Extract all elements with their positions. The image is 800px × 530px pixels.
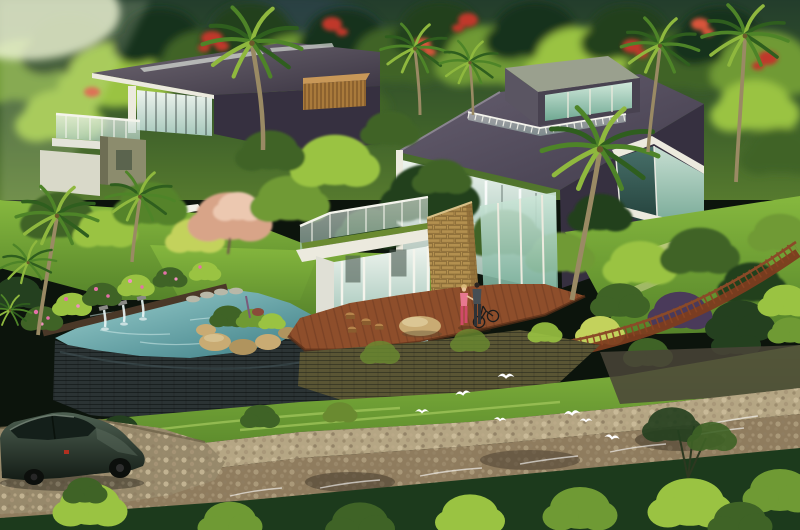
- car-wheel: [24, 469, 44, 485]
- deck-stool: [345, 312, 355, 319]
- deck-stool: [361, 318, 371, 325]
- car-wheel: [109, 458, 131, 478]
- deck-stool: [348, 327, 357, 333]
- car-side-light: [64, 450, 69, 454]
- deck-stool: [375, 324, 384, 330]
- wood-slat-screen: [303, 73, 370, 110]
- architectural-rendering: [0, 0, 800, 530]
- window: [116, 150, 132, 170]
